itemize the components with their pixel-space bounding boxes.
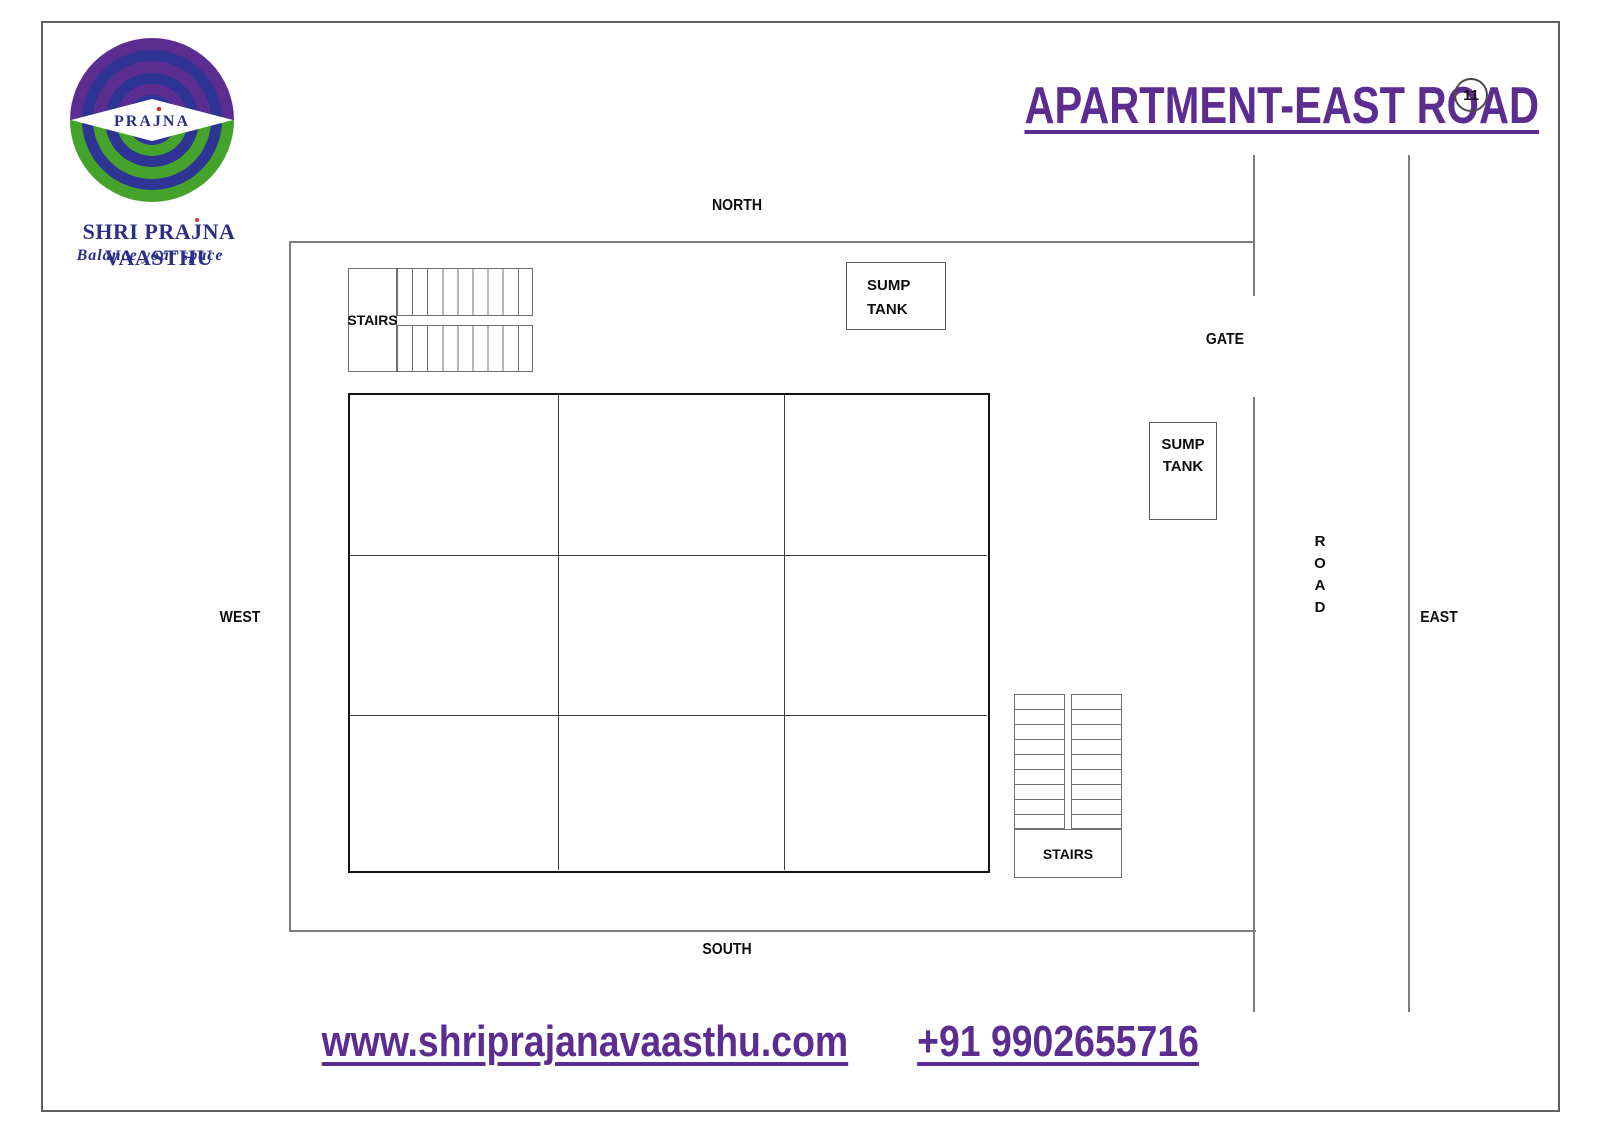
company-tagline: Balance your space: [30, 247, 270, 265]
gate-label: GATE: [1156, 331, 1244, 349]
page-title: APARTMENT-EAST ROAD: [1025, 78, 1381, 134]
website-link: www.shriprajanavaasthu.com: [322, 1018, 783, 1066]
road-letter: R: [1305, 531, 1335, 553]
stairs-nw-landing: STAIRS: [348, 268, 397, 372]
stairs-se-flight-left: [1014, 694, 1065, 829]
company-name-pre: SHRI PRA: [83, 219, 192, 244]
road-left-edge-lower: [1253, 397, 1255, 1012]
stairs-se-landing: STAIRS: [1014, 829, 1122, 878]
building-grid-horizontal-1: [350, 555, 987, 556]
logo-j-dot: [157, 107, 162, 112]
building-grid-horizontal-2: [350, 715, 987, 716]
road-left-edge-upper: [1253, 155, 1255, 296]
plot-boundary-west: [289, 241, 291, 932]
building-grid-vertical-2: [784, 395, 785, 870]
sump-tank-north: SUMP TANK: [846, 262, 946, 330]
compass-north: NORTH: [693, 197, 781, 215]
logo-word: PRAJNA: [114, 113, 190, 130]
compass-south: SOUTH: [683, 941, 771, 959]
road-letter: D: [1305, 597, 1335, 619]
stairs-nw-flight-upper: [397, 268, 533, 316]
prajna-logo: PRAJNA: [69, 37, 235, 203]
page-number-badge: 11: [1454, 78, 1488, 112]
slide: PRAJNA SHRI PRAJNA VAASTHU Balance your …: [0, 0, 1600, 1131]
company-name-j: J: [191, 219, 203, 244]
apartment-building: [348, 393, 990, 873]
road-label: R O A D: [1305, 531, 1335, 619]
stairs-se-flight-right: [1071, 694, 1122, 829]
road-letter: A: [1305, 575, 1335, 597]
sump-tank-north-line2: TANK: [867, 298, 945, 322]
sump-tank-east-line1: SUMP: [1150, 434, 1216, 456]
road-right-edge: [1408, 155, 1410, 1012]
plot-boundary-south: [289, 930, 1256, 932]
stairs-nw-flight-lower: [397, 325, 533, 372]
road-letter: O: [1305, 553, 1335, 575]
sump-tank-east-line2: TANK: [1150, 456, 1216, 478]
sump-tank-east: SUMP TANK: [1149, 422, 1217, 520]
plot-boundary-north: [289, 241, 1254, 243]
sump-tank-north-line1: SUMP: [867, 274, 945, 298]
phone-number: +91 9902655716: [917, 1018, 1168, 1066]
building-grid-vertical-1: [558, 395, 559, 870]
compass-west: WEST: [196, 609, 284, 627]
